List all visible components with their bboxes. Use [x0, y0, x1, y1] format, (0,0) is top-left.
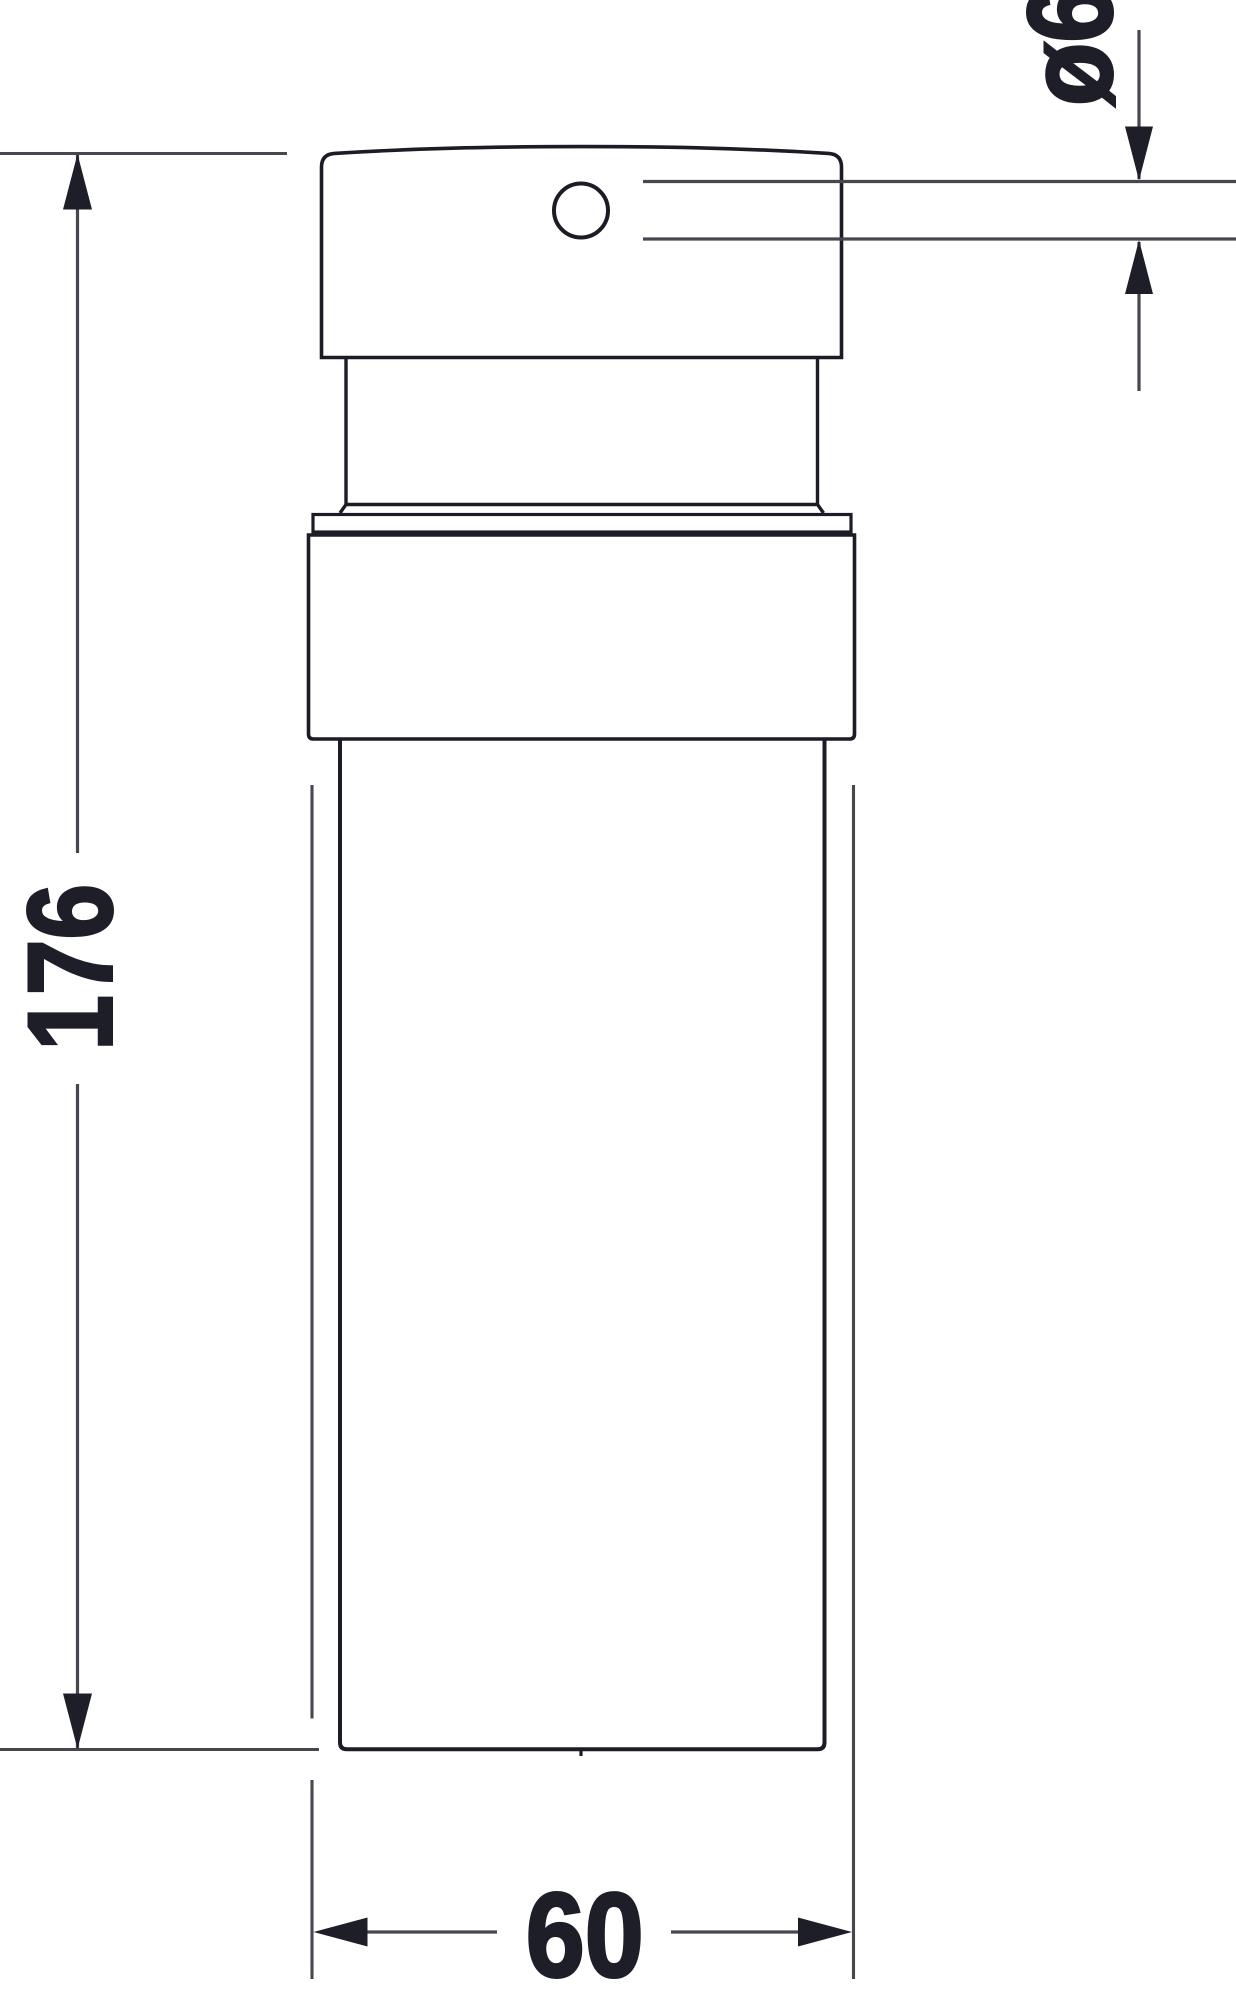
svg-text:60: 60	[526, 1868, 644, 2000]
svg-text:ø6: ø6	[1004, 0, 1138, 106]
svg-text:176: 176	[3, 884, 137, 1051]
